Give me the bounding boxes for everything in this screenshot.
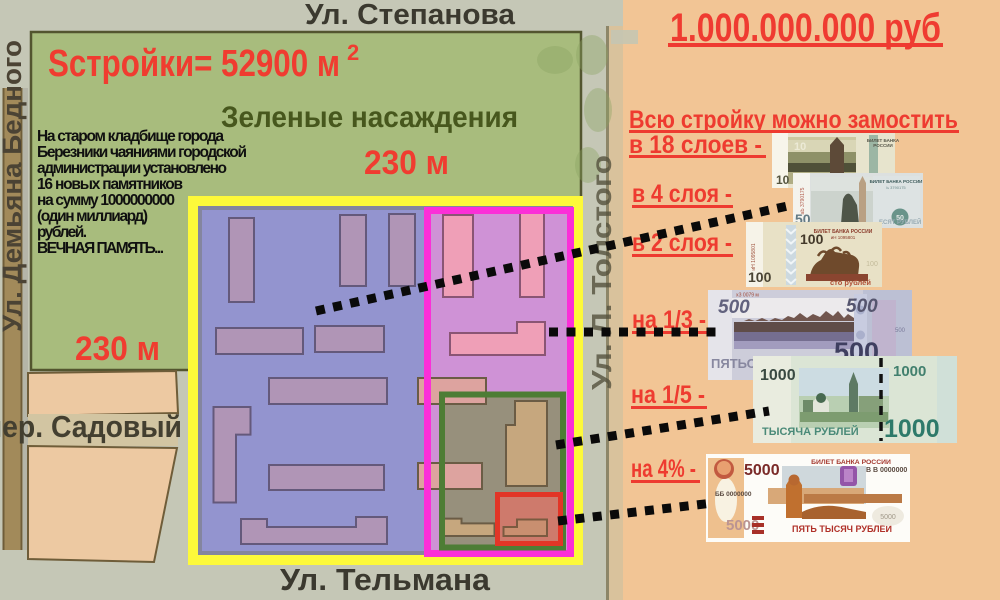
svg-text:БИЛЕТ БАНКА РОССИИ: БИЛЕТ БАНКА РОССИИ [870, 179, 923, 184]
svg-text:на 4% -: на 4% - [631, 455, 696, 483]
svg-text:10: 10 [776, 173, 790, 187]
svg-text:1000: 1000 [893, 363, 926, 380]
svg-text:Ул. Демьяна Бедного: Ул. Демьяна Бедного [0, 40, 27, 332]
svg-text:иН 1095801: иН 1095801 [831, 235, 856, 240]
svg-text:ББ 0000000: ББ 0000000 [715, 491, 752, 498]
svg-text:ТЫСЯЧА РУБЛЕЙ: ТЫСЯЧА РУБЛЕЙ [762, 425, 859, 438]
svg-text:на 1/5 -: на 1/5 - [631, 381, 705, 409]
svg-text:100: 100 [866, 261, 878, 268]
svg-text:5000: 5000 [880, 514, 896, 521]
svg-text:на сумму 1000000000: на сумму 1000000000 [37, 192, 175, 209]
svg-text:Ул. Степанова: Ул. Степанова [305, 0, 516, 31]
svg-text:ВЕЧНАЯ ПАМЯТЬ...: ВЕЧНАЯ ПАМЯТЬ... [37, 240, 164, 257]
svg-text:Sстройки= 52900 м: Sстройки= 52900 м [48, 43, 340, 85]
svg-text:в 4 слоя -: в 4 слоя - [632, 180, 732, 208]
svg-text:пер. Садовый: пер. Садовый [0, 409, 182, 444]
svg-text:10: 10 [794, 141, 806, 153]
svg-text:ПЯТЬ ТЫСЯЧ РУБЛЕЙ: ПЯТЬ ТЫСЯЧ РУБЛЕЙ [792, 523, 892, 534]
svg-text:1000: 1000 [760, 367, 796, 384]
svg-text:2: 2 [347, 40, 359, 65]
svg-text:БИЛЕТ БАНКА РОССИИ: БИЛЕТ БАНКА РОССИИ [811, 459, 891, 466]
svg-text:230 м: 230 м [75, 330, 160, 368]
svg-text:5000: 5000 [744, 462, 780, 479]
svg-text:230 м: 230 м [364, 144, 449, 182]
svg-text:500: 500 [846, 296, 878, 317]
svg-text:Березники чаяниями городской: Березники чаяниями городской [37, 144, 247, 161]
svg-text:хЗ 0079 м: хЗ 0079 м [736, 293, 759, 299]
svg-text:100: 100 [748, 269, 772, 285]
svg-text:администрации установлено: администрации установлено [37, 160, 227, 177]
svg-text:В В 0000000: В В 0000000 [866, 467, 907, 474]
svg-text:Ь 3790175: Ь 3790175 [886, 185, 906, 190]
svg-text:Всю стройку можно замостить: Всю стройку можно замостить [629, 106, 958, 134]
svg-text:На старом кладбище города: На старом кладбище города [37, 128, 224, 145]
svg-text:1000: 1000 [884, 415, 940, 443]
svg-text:ЕСЯТ РУБЛЕЙ: ЕСЯТ РУБЛЕЙ [879, 218, 921, 226]
svg-text:иН 1095801: иН 1095801 [751, 243, 757, 270]
svg-text:сто рублей: сто рублей [830, 278, 871, 287]
svg-text:16 новых памятников: 16 новых памятников [37, 176, 183, 193]
svg-text:в 18 слоев -: в 18 слоев - [629, 131, 762, 159]
svg-text:Ул. Л. Толстого: Ул. Л. Толстого [586, 155, 617, 390]
svg-text:Ул. Тельмана: Ул. Тельмана [280, 562, 491, 597]
svg-text:500: 500 [895, 328, 906, 334]
svg-text:РОССИИ: РОССИИ [873, 143, 892, 148]
svg-text:500: 500 [718, 297, 750, 318]
svg-text:Зеленые насаждения: Зеленые насаждения [221, 101, 518, 134]
svg-text:рублей.: рублей. [37, 224, 87, 241]
svg-text:(один миллиард): (один миллиард) [37, 208, 148, 225]
